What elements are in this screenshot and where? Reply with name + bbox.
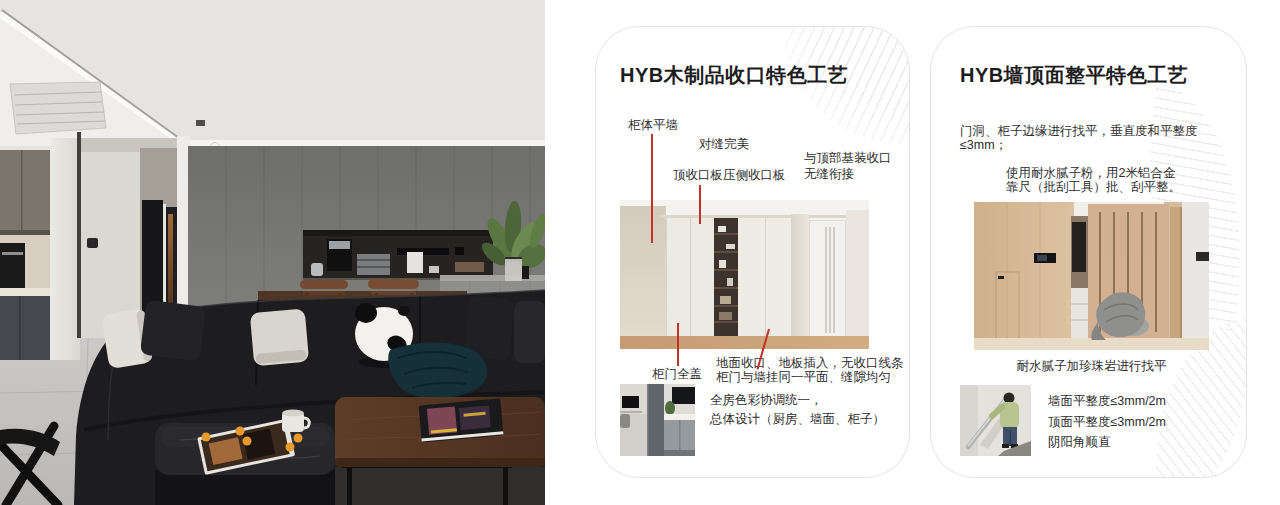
cup-rack — [357, 254, 390, 275]
magazine-2 — [419, 398, 504, 442]
kettle — [311, 263, 323, 276]
living-room-photo — [0, 0, 545, 505]
coffee-niche — [303, 230, 493, 280]
wood-room-photo — [974, 202, 1209, 350]
card-leveling-process: HYB墙顶面整平特色工艺 门洞、柜子边缘进行找平，垂直度和平整度≤3mm； 使用… — [930, 26, 1247, 478]
card-woodwork-process: HYB木制品收口特色工艺 柜体平墙 对缝完美 顶收口板压侧收口板 与顶部基装收口… — [595, 26, 910, 478]
color-scheme-photo — [620, 384, 695, 456]
kitchen-lower-cabinet — [0, 296, 55, 360]
leader-line-1 — [651, 134, 653, 243]
black-pillow — [140, 300, 206, 362]
card1-title: HYB木制品收口特色工艺 — [620, 62, 848, 89]
pouf-blanket — [974, 202, 1209, 350]
spec-ceiling-flatness: 顶面平整度≤3mm/2m — [1048, 412, 1166, 433]
leader-line-2 — [699, 185, 701, 224]
living-room-scene — [0, 0, 545, 505]
hatch-pattern-fade — [759, 27, 909, 167]
kitchen-area — [0, 132, 81, 360]
stone-coffee-table — [155, 410, 335, 505]
para-leveling-spec: 门洞、柜子边缘进行找平，垂直度和平整度≤3mm； — [960, 124, 1198, 152]
label-cabinet-flush-wall: 柜体平墙 — [628, 118, 678, 133]
label-color-unified: 全房色彩协调统一， — [710, 393, 823, 408]
render-left-wall — [620, 206, 666, 338]
leader-line-3 — [677, 323, 679, 366]
light-switch — [87, 238, 98, 248]
walnut-coffee-table — [335, 397, 545, 505]
hallway-door-1 — [142, 200, 163, 316]
spec-wall-flatness: 墙面平整度≤3mm/2m — [1048, 391, 1166, 412]
ceiling-vent-grille — [10, 82, 106, 134]
label-top-panel: 顶收口板压侧收口板 — [673, 168, 786, 183]
kitchen-upper-cabinet — [0, 150, 50, 235]
label-ceiling-join: 与顶部基装收口 无缝衔接 — [804, 150, 892, 182]
kitchen-countertop — [0, 288, 55, 296]
image-caption: 耐水腻子加珍珠岩进行找平 — [974, 358, 1209, 375]
open-shelving — [714, 218, 738, 336]
kitchen-coffee-machine — [0, 243, 25, 292]
label-overall-design: 总体设计（厨房、墙面、柜子） — [710, 412, 885, 427]
worker-leveling-photo — [960, 385, 1031, 456]
spec-corners: 阴阳角顺直 — [1048, 432, 1166, 453]
leveling-specs: 墙面平整度≤3mm/2m 顶面平整度≤3mm/2m 阴阳角顺直 — [1048, 391, 1166, 453]
wardrobe-render-image — [620, 200, 869, 349]
white-coffee-maker — [407, 252, 423, 273]
render-wood-floor — [620, 336, 869, 349]
label-floor-join: 地面收口、地板插入，无收口线条 柜门与墙挂同一平面、缝隙均匀 — [716, 356, 904, 384]
ceiling-speaker — [196, 120, 205, 126]
card2-title: HYB墙顶面整平特色工艺 — [960, 62, 1188, 89]
para-putty-method: 使用耐水腻子粉，用2米铝合金 靠尺（批刮工具）批、刮平整。 — [1006, 166, 1181, 194]
label-perfect-seam: 对缝完美 — [699, 137, 749, 152]
label-full-cover-door: 柜门全盖 — [652, 367, 702, 382]
ceiling — [0, 0, 545, 162]
page: HYB木制品收口特色工艺 柜体平墙 对缝完美 顶收口板压侧收口板 与顶部基装收口… — [0, 0, 1280, 505]
interior-door — [809, 220, 846, 340]
plant-vase — [505, 259, 522, 281]
